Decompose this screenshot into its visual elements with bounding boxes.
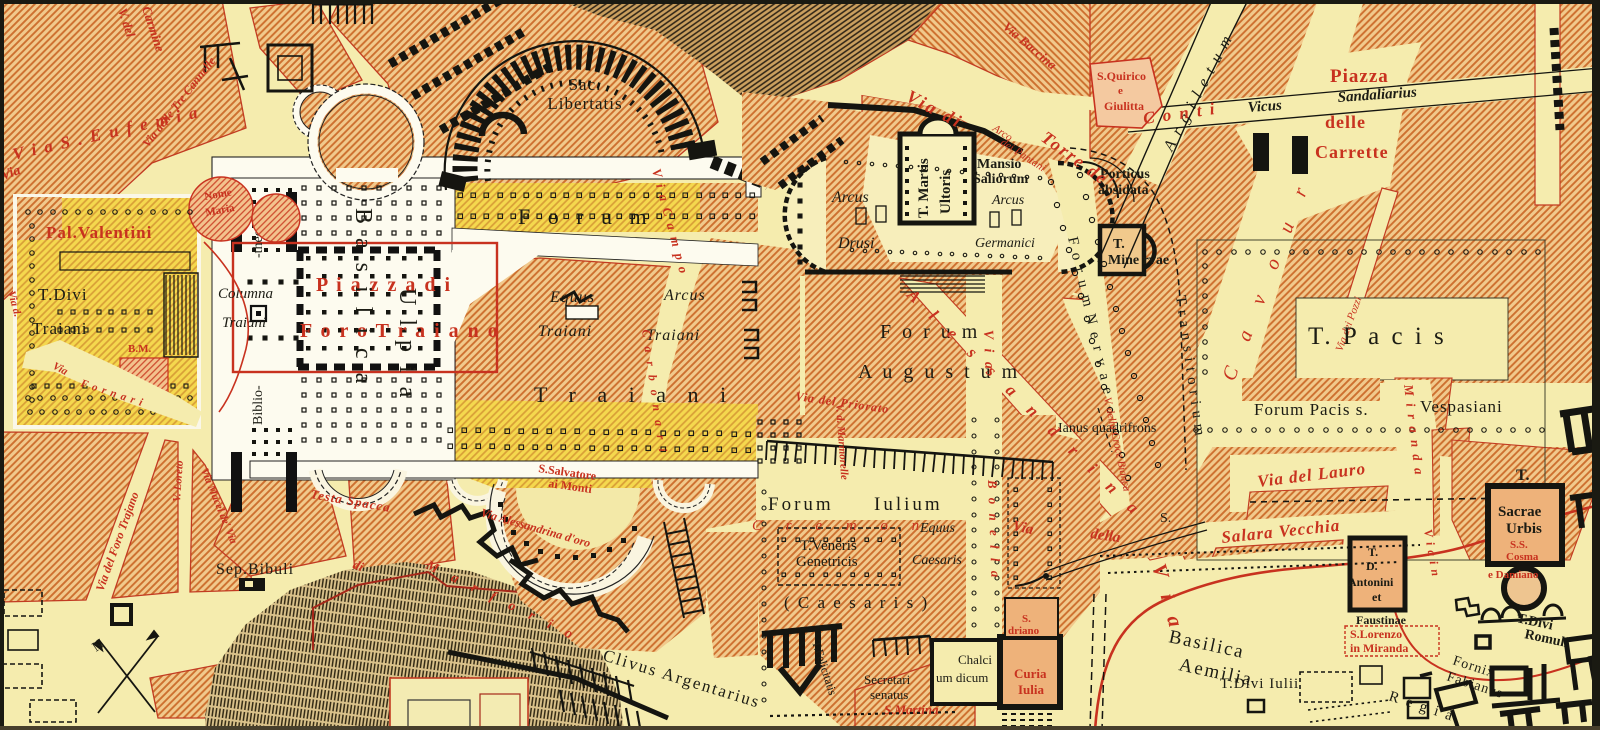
svg-text:delle: delle — [1325, 112, 1366, 132]
svg-text:T r a i a n i: T r a i a n i — [534, 382, 734, 407]
svg-text:Faustinae: Faustinae — [1356, 613, 1407, 627]
svg-text:Columna: Columna — [218, 286, 273, 302]
svg-text:Traiani: Traiani — [222, 315, 266, 331]
svg-text:Vespasiani: Vespasiani — [1420, 397, 1503, 416]
svg-text:P i a z z a d i: P i a z z a d i — [316, 274, 452, 296]
svg-text:Caesaris: Caesaris — [912, 553, 962, 568]
svg-text:T. Martis: T. Martis — [916, 158, 932, 218]
svg-text:Urbis: Urbis — [1506, 521, 1542, 537]
svg-text:senatus: senatus — [870, 687, 908, 702]
svg-text:Giulitta: Giulitta — [1104, 99, 1144, 113]
svg-text:D.: D. — [1366, 559, 1378, 573]
svg-text:Sacrae: Sacrae — [1498, 504, 1542, 520]
svg-text:Sac.: Sac. — [569, 75, 602, 94]
svg-text:S.Martina: S.Martina — [884, 702, 939, 717]
svg-text:Saliorum: Saliorum — [973, 172, 1029, 187]
svg-text:B a s i l i c a: B a s i l i c a — [350, 208, 376, 387]
svg-text:Traiani: Traiani — [538, 323, 592, 340]
svg-text:Chalci: Chalci — [958, 652, 992, 667]
svg-text:S.: S. — [1022, 613, 1031, 625]
svg-text:Iulium: Iulium — [874, 494, 943, 515]
svg-text:C r e m o n: C r e m o n — [752, 518, 929, 534]
svg-text:Libertatis: Libertatis — [547, 94, 622, 113]
svg-text:T.Veneris: T.Veneris — [800, 538, 857, 554]
svg-text:Antonini: Antonini — [1348, 575, 1394, 589]
svg-text:T.: T. — [1516, 467, 1529, 484]
svg-text:B.M.: B.M. — [128, 343, 151, 355]
svg-text:in Miranda: in Miranda — [1350, 641, 1408, 655]
svg-text:Cosma: Cosma — [1506, 551, 1539, 563]
svg-text:Forum: Forum — [768, 494, 834, 515]
svg-text:Drusi: Drusi — [837, 235, 874, 252]
svg-text:Genetricis: Genetricis — [796, 554, 858, 570]
svg-text:T.Divi: T.Divi — [38, 285, 88, 304]
svg-text:Arcus: Arcus — [831, 189, 869, 206]
svg-text:S.: S. — [1160, 511, 1171, 526]
svg-text:Germanici: Germanici — [975, 236, 1035, 251]
svg-text:Iulia: Iulia — [1018, 682, 1045, 697]
svg-text:Piazza: Piazza — [1330, 66, 1389, 87]
svg-text:e: e — [1118, 85, 1123, 97]
svg-text:S.Quirico: S.Quirico — [1097, 69, 1146, 83]
svg-text:Vicus: Vicus — [1247, 98, 1282, 116]
svg-text:e Damiano: e Damiano — [1488, 569, 1539, 581]
svg-text:Mansio: Mansio — [977, 157, 1021, 172]
svg-text:F o r u m: F o r u m — [518, 204, 653, 229]
svg-text:U l p i a: U l p i a — [394, 288, 420, 401]
svg-text:T. P a c i s: T. P a c i s — [1308, 323, 1447, 350]
svg-text:( C a e s a r i s ): ( C a e s a r i s ) — [784, 593, 929, 612]
svg-text:driano: driano — [1008, 625, 1040, 637]
svg-text:Arcus: Arcus — [663, 287, 706, 304]
svg-text:Curia: Curia — [1014, 666, 1047, 681]
svg-text:Ultoris: Ultoris — [938, 170, 954, 214]
svg-text:Forum Pacis s.: Forum Pacis s. — [1254, 400, 1369, 419]
svg-text:Biblio-: Biblio- — [251, 385, 266, 425]
svg-text:S.Lorenzo: S.Lorenzo — [1350, 627, 1402, 641]
svg-text:T.: T. — [1113, 237, 1125, 252]
svg-text:S.S.: S.S. — [1510, 539, 1528, 551]
svg-text:Mine rvae: Mine rvae — [1108, 253, 1169, 268]
svg-text:Carrette: Carrette — [1315, 142, 1389, 162]
svg-text:Sep.Bibuli: Sep.Bibuli — [216, 561, 294, 578]
svg-text:et: et — [1372, 590, 1381, 604]
svg-text:Pal.Valentini: Pal.Valentini — [46, 223, 152, 242]
svg-text:Arcus: Arcus — [991, 193, 1025, 208]
svg-text:Secretari: Secretari — [864, 672, 911, 687]
svg-text:um dicum: um dicum — [936, 670, 988, 685]
